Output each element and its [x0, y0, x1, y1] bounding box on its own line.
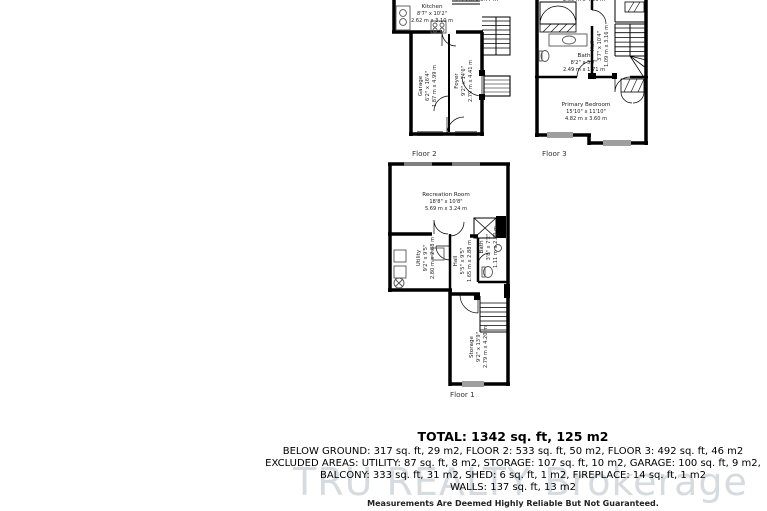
room-dim-metric: 1.65 m x 2.88 m [467, 240, 474, 282]
room-dim-imperial: 6'2" x 16'4" [425, 65, 432, 107]
floor3-cut-dimension: 2.69 m x 4.23 m [563, 0, 605, 3]
summary-line-walls: WALLS: 137 sq. ft, 13 m2 [257, 482, 767, 494]
room-name: Kitchen [411, 4, 453, 11]
floor2-tag: Floor 2 [412, 149, 437, 158]
room-dim-imperial: 8'7" x 10'2" [411, 11, 453, 18]
room-name: Utility [416, 237, 423, 279]
summary-line-excluded: EXCLUDED AREAS: UTILITY: 87 sq. ft, 8 m2… [257, 458, 767, 470]
room-dim-metric: 2.79 m x 4.41 m [468, 60, 475, 102]
disclaimer-text: Measurements Are Deemed Highly Reliable … [257, 499, 767, 508]
room-name: Hall [453, 240, 460, 282]
total-area-line: TOTAL: 1342 sq. ft, 125 m2 [257, 429, 767, 444]
room-label-foyer: Foyer 9'2" x 14'6" 2.79 m x 4.41 m [454, 60, 474, 102]
room-dim-metric: 4.82 m x 3.60 m [562, 116, 611, 123]
room-dim-metric: 2.79 m x 4.20 m [483, 326, 490, 368]
room-label-recreation: Recreation Room 18'8" x 10'8" 5.69 m x 3… [422, 192, 470, 212]
room-dim-imperial: 3'7" x 10'4" [597, 25, 604, 67]
room-name: Primary Bedroom [562, 102, 611, 109]
room-dim-metric: 2.62 m x 3.10 m [411, 18, 453, 25]
area-summary: TOTAL: 1342 sq. ft, 125 m2 BELOW GROUND:… [257, 429, 767, 508]
room-name: Garage [418, 65, 425, 107]
room-label-bath-floor1: Bath 3'8" x 7'2" 1.11 m x 2.20 m [479, 226, 499, 268]
room-dim-metric: 2.49 m x 1.71 m [563, 67, 605, 74]
room-dim-metric: 1.11 m x 2.20 m [493, 226, 500, 268]
room-dim-metric: 5.69 m x 3.24 m [422, 206, 470, 213]
room-dim-metric: 1.87 m x 4.99 m [432, 65, 439, 107]
floorplan-sheet: 2.79 m x 3.77 m 2.69 m x 4.23 m Kitchen … [0, 0, 767, 511]
room-name: Storage [469, 326, 476, 368]
room-label-kitchen: Kitchen 8'7" x 10'2" 2.62 m x 3.10 m [411, 4, 453, 24]
room-dim-imperial: 15'10" x 11'10" [562, 109, 611, 116]
floor2-cut-dimension: 2.79 m x 3.77 m [456, 0, 498, 3]
floor1-tag: Floor 1 [450, 390, 475, 399]
room-label-hall-floor3: Hall 3'7" x 10'4" 1.09 m x 3.16 m [590, 25, 610, 67]
room-label-primary-bedroom: Primary Bedroom 15'10" x 11'10" 4.82 m x… [562, 102, 611, 122]
room-dim-imperial: 9'2" x 14'6" [461, 60, 468, 102]
room-name: Bath [479, 226, 486, 268]
summary-line-floors: BELOW GROUND: 317 sq. ft, 29 m2, FLOOR 2… [257, 446, 767, 458]
summary-line-balcony: BALCONY: 333 sq. ft, 31 m2, SHED: 6 sq. … [257, 470, 767, 482]
room-label-garage: Garage 6'2" x 16'4" 1.87 m x 4.99 m [418, 65, 438, 107]
room-dim-imperial: 9'2" x 13'9" [476, 326, 483, 368]
floor3-plan [533, 0, 658, 152]
room-name: Foyer [454, 60, 461, 102]
room-dim-metric: 1.09 m x 3.16 m [604, 25, 611, 67]
room-name: Recreation Room [422, 192, 470, 199]
room-label-utility: Utility 9'2" x 9'5" 2.80 m x 2.88 m [416, 237, 436, 279]
room-label-hall-floor1: Hall 5'5" x 9'5" 1.65 m x 2.88 m [453, 240, 473, 282]
floor3-plan-drawing [533, 0, 658, 152]
floor3-tag: Floor 3 [542, 149, 567, 158]
room-dim-metric: 2.80 m x 2.88 m [430, 237, 437, 279]
room-name: Hall [590, 25, 597, 67]
room-label-storage: Storage 9'2" x 13'9" 2.79 m x 4.20 m [469, 326, 489, 368]
